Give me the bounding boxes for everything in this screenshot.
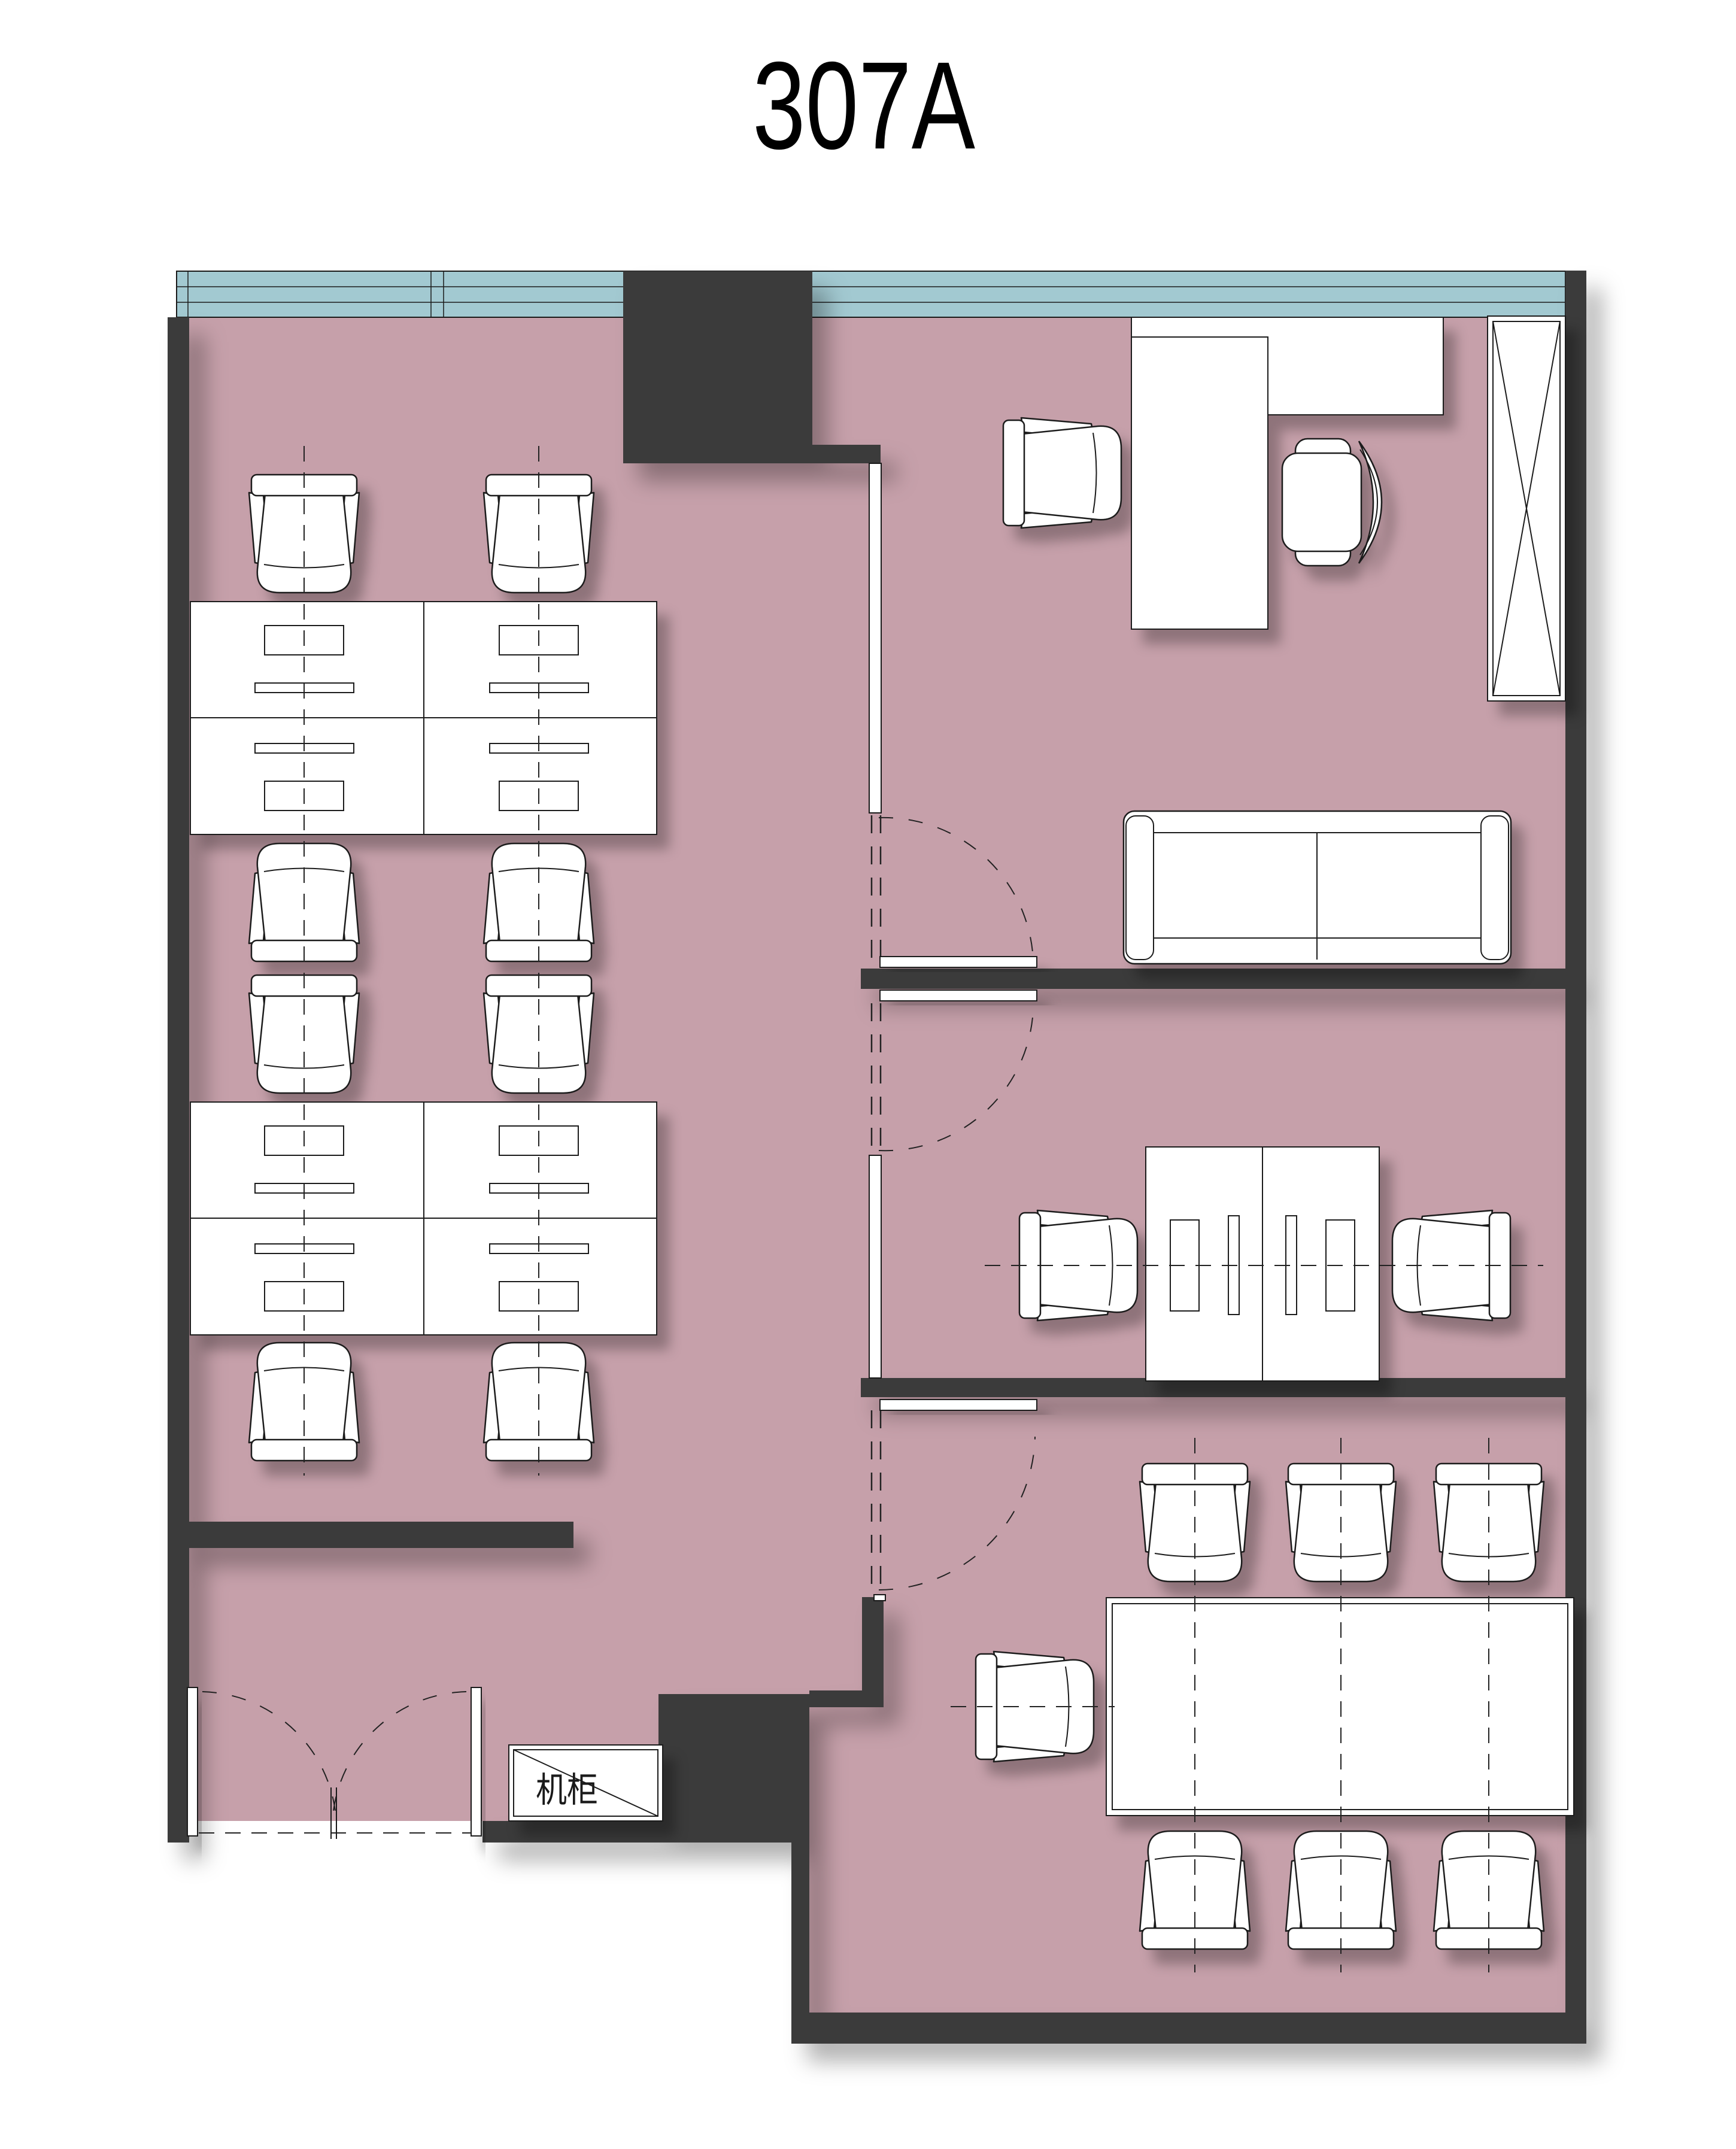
desk-cluster-2: [190, 1102, 657, 1335]
visitor-chair: [1003, 418, 1121, 528]
desk: [190, 1218, 424, 1335]
desk: [424, 602, 657, 718]
door-leaf: [880, 1400, 1037, 1410]
entrance-door-leaf-right: [471, 1687, 481, 1836]
door-leaf: [880, 990, 1037, 1001]
desk: [190, 718, 424, 834]
glass-partition-cap: [874, 1595, 885, 1601]
desk-cluster-1: [190, 602, 657, 834]
wall-stub-block: [809, 1690, 884, 1707]
office-desk: [1131, 337, 1268, 629]
server-cabinet-label: 机柜: [536, 1769, 598, 1810]
desk: [190, 1102, 424, 1218]
meeting-desk: [1262, 1147, 1379, 1381]
structural-column: [623, 271, 812, 463]
conference-table: [1106, 1598, 1574, 1816]
floor-plan-canvas: 307A 机柜: [0, 0, 1736, 2149]
door-leaf: [880, 957, 1037, 967]
window-band: [177, 271, 1565, 317]
desk: [190, 602, 424, 718]
wall-bottom-left-b: [482, 1821, 658, 1843]
glass-partition-segment: [869, 1155, 881, 1378]
floor-plan-page: { "title": "307A", "labels": { "cabinet"…: [0, 0, 1736, 2149]
entrance-door-leaf-left: [187, 1687, 198, 1836]
desk: [424, 1102, 657, 1218]
sofa: [1124, 811, 1511, 964]
wall-office-meeting: [861, 969, 1565, 989]
wall-left: [168, 317, 189, 1843]
desk: [424, 1218, 657, 1335]
wall-step: [791, 1843, 809, 2022]
wall-bottom: [791, 2013, 1586, 2044]
tall-cabinet: [1488, 316, 1565, 701]
glass-partition-segment: [869, 463, 881, 813]
page-title: 307A: [752, 37, 975, 175]
desk: [424, 718, 657, 834]
wall-bottom-left-a: [168, 1821, 187, 1843]
wall-stub-column: [812, 445, 881, 463]
meeting-desk: [1146, 1147, 1262, 1381]
wall-divider-stub: [189, 1522, 573, 1548]
wall-block: [658, 1694, 809, 1843]
